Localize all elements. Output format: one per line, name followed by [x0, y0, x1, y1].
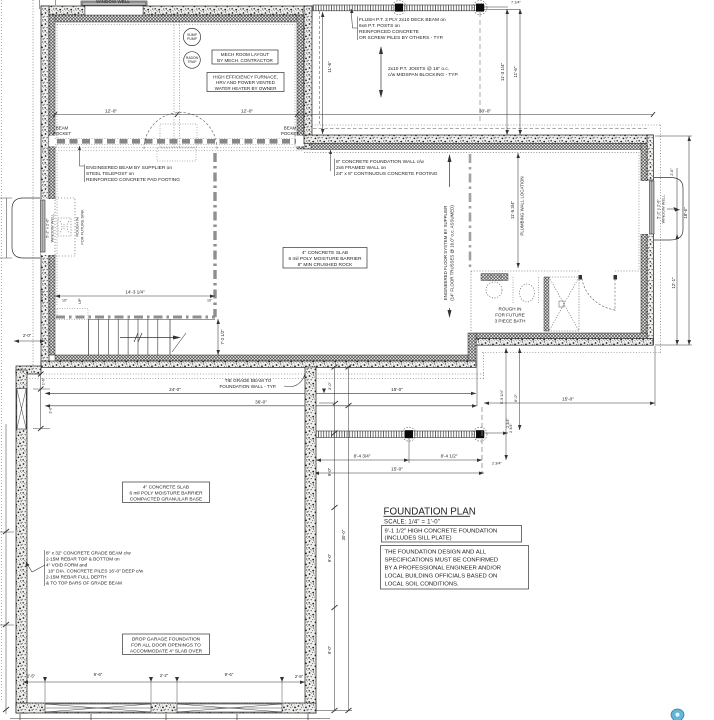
svg-text:STEEL TELEPOST on: STEEL TELEPOST on — [86, 171, 134, 177]
svg-text:9'-6": 9'-6" — [94, 672, 103, 677]
svg-text:2'-5": 2'-5" — [27, 674, 36, 679]
svg-text:WATER HEATER BY OWNER: WATER HEATER BY OWNER — [215, 86, 278, 91]
svg-text:2x6 FRAMED WALL on: 2x6 FRAMED WALL on — [336, 165, 386, 171]
svg-text:4" CONCRETE SLAB: 4" CONCRETE SLAB — [302, 250, 348, 256]
svg-text:6'-0": 6'-0" — [513, 394, 518, 402]
svg-text:9'-0": 9'-0" — [327, 645, 332, 654]
svg-text:7 1/4": 7 1/4" — [511, 1, 521, 5]
svg-text:8" MIN CRUSHED ROCK: 8" MIN CRUSHED ROCK — [298, 262, 354, 268]
svg-text:2'-2": 2'-2" — [160, 673, 169, 678]
svg-text:LOCAL BUILDING OFFICIALS BASED: LOCAL BUILDING OFFICIALS BASED ON — [385, 574, 498, 580]
svg-text:HRV AND POWER VENTED: HRV AND POWER VENTED — [216, 80, 276, 85]
svg-text:ENGINEERED BEAM BY SUPPLIER on: ENGINEERED BEAM BY SUPPLIER on — [86, 165, 172, 171]
svg-text:REINFORCED CONCRETE: REINFORCED CONCRETE — [359, 29, 419, 35]
svg-text:ENGINEERED FLOOR SYSTEM BY SUP: ENGINEERED FLOOR SYSTEM BY SUPPLIER — [443, 206, 448, 301]
svg-text:9'-6": 9'-6" — [225, 672, 234, 677]
svg-text:POCKET: POCKET — [281, 131, 299, 136]
svg-text:9'-0": 9'-0" — [327, 553, 332, 562]
svg-text:7'-2 1/2": 7'-2 1/2" — [220, 329, 225, 345]
svg-text:2x10 P.T. JOISTS @ 16" o.c.: 2x10 P.T. JOISTS @ 16" o.c. — [388, 66, 449, 72]
svg-text:6x6 P.T. POSTS on: 6x6 P.T. POSTS on — [359, 23, 400, 29]
svg-text:11'-5 3/4": 11'-5 3/4" — [510, 200, 515, 219]
svg-text:& TO TOP BARS OF GRADE BEAM: & TO TOP BARS OF GRADE BEAM — [46, 581, 122, 586]
svg-text:THE FOUNDATION DESIGN AND ALL: THE FOUNDATION DESIGN AND ALL — [385, 550, 487, 556]
svg-text:11'-6": 11'-6" — [327, 61, 332, 73]
svg-text:PUMP: PUMP — [187, 37, 198, 41]
svg-text:2'-6": 2'-6" — [670, 168, 674, 176]
svg-text:ROUGH IN: ROUGH IN — [499, 307, 522, 312]
svg-text:FOR FUTURE: FOR FUTURE — [495, 313, 525, 318]
svg-text:8'-4 3/4": 8'-4 3/4" — [354, 454, 371, 459]
svg-text:24" x 8" CONTINUOUS CONCRETE F: 24" x 8" CONTINUOUS CONCRETE FOOTING — [336, 171, 438, 177]
svg-text:BY A PROFESSIONAL ENGINEER AND: BY A PROFESSIONAL ENGINEER AND/OR — [385, 566, 502, 572]
svg-text:3 PIECE BATH: 3 PIECE BATH — [495, 319, 526, 324]
svg-text:12'-0": 12'-0" — [105, 109, 118, 115]
svg-text:10": 10" — [62, 299, 68, 303]
svg-text:FOR FUTURE SINK: FOR FUTURE SINK — [80, 209, 85, 245]
svg-text:2-15M REBAR TOP & BOTTOM on: 2-15M REBAR TOP & BOTTOM on — [46, 557, 120, 562]
svg-text:5'-9 1/4": 5'-9 1/4" — [499, 389, 504, 404]
svg-text:18'-6": 18'-6" — [683, 207, 688, 219]
svg-text:8'-4 1/2": 8'-4 1/2" — [441, 454, 458, 459]
svg-text:LOCAL SOIL CONDITIONS.: LOCAL SOIL CONDITIONS. — [385, 582, 460, 588]
svg-text:FOUNDATION WALL - TYP.: FOUNDATION WALL - TYP. — [219, 384, 276, 389]
svg-text:TRAP: TRAP — [187, 60, 197, 64]
svg-text:11'-6": 11'-6" — [513, 66, 518, 77]
svg-text:8" CONCRETE FOUNDATION WALL c/: 8" CONCRETE FOUNDATION WALL c/w — [336, 159, 424, 165]
svg-text:2'-0": 2'-0" — [23, 333, 32, 338]
svg-text:30'-0": 30'-0" — [341, 529, 346, 540]
svg-text:(14" FLOOR TRUSSES @ 16.0" o.c: (14" FLOOR TRUSSES @ 16.0" o.c. ASSUMED) — [450, 205, 455, 301]
svg-text:2 3/4": 2 3/4" — [506, 417, 510, 427]
svg-text:POCKET: POCKET — [53, 131, 71, 136]
svg-text:OR SCREW PILES BY OTHERS - TYP: OR SCREW PILES BY OTHERS - TYP. — [359, 35, 444, 41]
svg-text:3'-0": 3'-0" — [327, 382, 332, 390]
svg-text:15'-0": 15'-0" — [562, 397, 574, 402]
svg-text:11'-3 1/4": 11'-3 1/4" — [500, 62, 505, 81]
svg-text:BY MECH. CONTRACTOR: BY MECH. CONTRACTOR — [217, 58, 273, 63]
svg-text:10": 10" — [207, 299, 213, 303]
svg-text:FOR ALL DOOR OPENINGS TO: FOR ALL DOOR OPENINGS TO — [131, 643, 201, 649]
svg-text:15'-0": 15'-0" — [391, 387, 403, 392]
svg-text:BEAM: BEAM — [56, 126, 69, 131]
svg-text:24'-0": 24'-0" — [169, 387, 181, 392]
svg-text:6 mil POLY MOISTURE BARRIER: 6 mil POLY MOISTURE BARRIER — [129, 491, 203, 497]
svg-text:SPECIFICATIONS MUST BE CONFIRM: SPECIFICATIONS MUST BE CONFIRMED — [385, 558, 499, 564]
svg-text:4" CONCRETE SLAB: 4" CONCRETE SLAB — [143, 485, 189, 491]
svg-text:6 mil POLY MOISTURE BARRIER: 6 mil POLY MOISTURE BARRIER — [288, 256, 362, 262]
svg-text:WINDOW WELL: WINDOW WELL — [96, 0, 130, 4]
svg-text:PLUMBING WALL LOCATION: PLUMBING WALL LOCATION — [520, 176, 525, 235]
svg-text:BEAM: BEAM — [284, 126, 297, 131]
svg-text:8" x 32" CONCRETE GRADE BEAM c: 8" x 32" CONCRETE GRADE BEAM c/w — [46, 551, 131, 556]
svg-text:ACCOMMODATE 4" SLAB OVER: ACCOMMODATE 4" SLAB OVER — [130, 649, 203, 655]
svg-text:DROP GARAGE FOUNDATION: DROP GARAGE FOUNDATION — [132, 637, 201, 643]
svg-text:12'-1": 12'-1" — [671, 277, 676, 289]
svg-text:TIE GRADE BEAM TO: TIE GRADE BEAM TO — [225, 378, 272, 383]
svg-text:4" VOID FORM and: 4" VOID FORM and — [46, 563, 88, 568]
svg-text:UP: UP — [77, 298, 82, 304]
svg-text:2'-5": 2'-5" — [295, 674, 304, 679]
svg-text:2 3/4": 2 3/4" — [492, 462, 502, 466]
svg-text:(INCLUDES SILL PLATE): (INCLUDES SILL PLATE) — [385, 536, 452, 542]
svg-text:15'-0": 15'-0" — [391, 467, 403, 472]
svg-text:COMPACTED GRANULAR BASE: COMPACTED GRANULAR BASE — [130, 497, 202, 503]
svg-text:REINFORCED CONCRETE PAD FOOTIN: REINFORCED CONCRETE PAD FOOTING — [86, 177, 180, 183]
svg-text:FLUSH P.T. 3 PLY 2x10 DECK BEA: FLUSH P.T. 3 PLY 2x10 DECK BEAM on — [359, 17, 446, 23]
svg-text:WINDOW WELL: WINDOW WELL — [661, 194, 666, 224]
svg-text:14'-3 1/4": 14'-3 1/4" — [125, 290, 145, 295]
svg-text:10" DIA. CONCRETE PILES 16'-0": 10" DIA. CONCRETE PILES 16'-0" DEEP c/w — [48, 569, 144, 574]
svg-text:2-15M REBAR FULL DEPTH: 2-15M REBAR FULL DEPTH — [46, 575, 107, 580]
svg-text:9'-0": 9'-0" — [327, 467, 332, 476]
svg-text:1'-1 1/2": 1'-1 1/2" — [40, 289, 44, 303]
svg-text:HIGH EFFICIENCY FURNACE,: HIGH EFFICIENCY FURNACE, — [213, 75, 278, 80]
svg-text:c/w MIDSPAN BLOCKING - TYP.: c/w MIDSPAN BLOCKING - TYP. — [388, 72, 458, 78]
svg-text:30'-0": 30'-0" — [479, 109, 492, 115]
svg-text:36'-0": 36'-0" — [255, 399, 267, 404]
svg-text:9'-1 1/2" HIGH CONCRETE FOUNDA: 9'-1 1/2" HIGH CONCRETE FOUNDATION — [385, 529, 498, 535]
svg-text:SCALE: 1/4" = 1'-0": SCALE: 1/4" = 1'-0" — [384, 520, 440, 526]
svg-text:WINDOW WELL: WINDOW WELL — [50, 213, 55, 243]
svg-text:3'-6": 3'-6" — [49, 406, 53, 414]
svg-text:1'-6": 1'-6" — [42, 377, 46, 385]
svg-text:12'-0": 12'-0" — [241, 109, 254, 115]
svg-text:MECH ROOM LAYOUT: MECH ROOM LAYOUT — [221, 52, 270, 57]
